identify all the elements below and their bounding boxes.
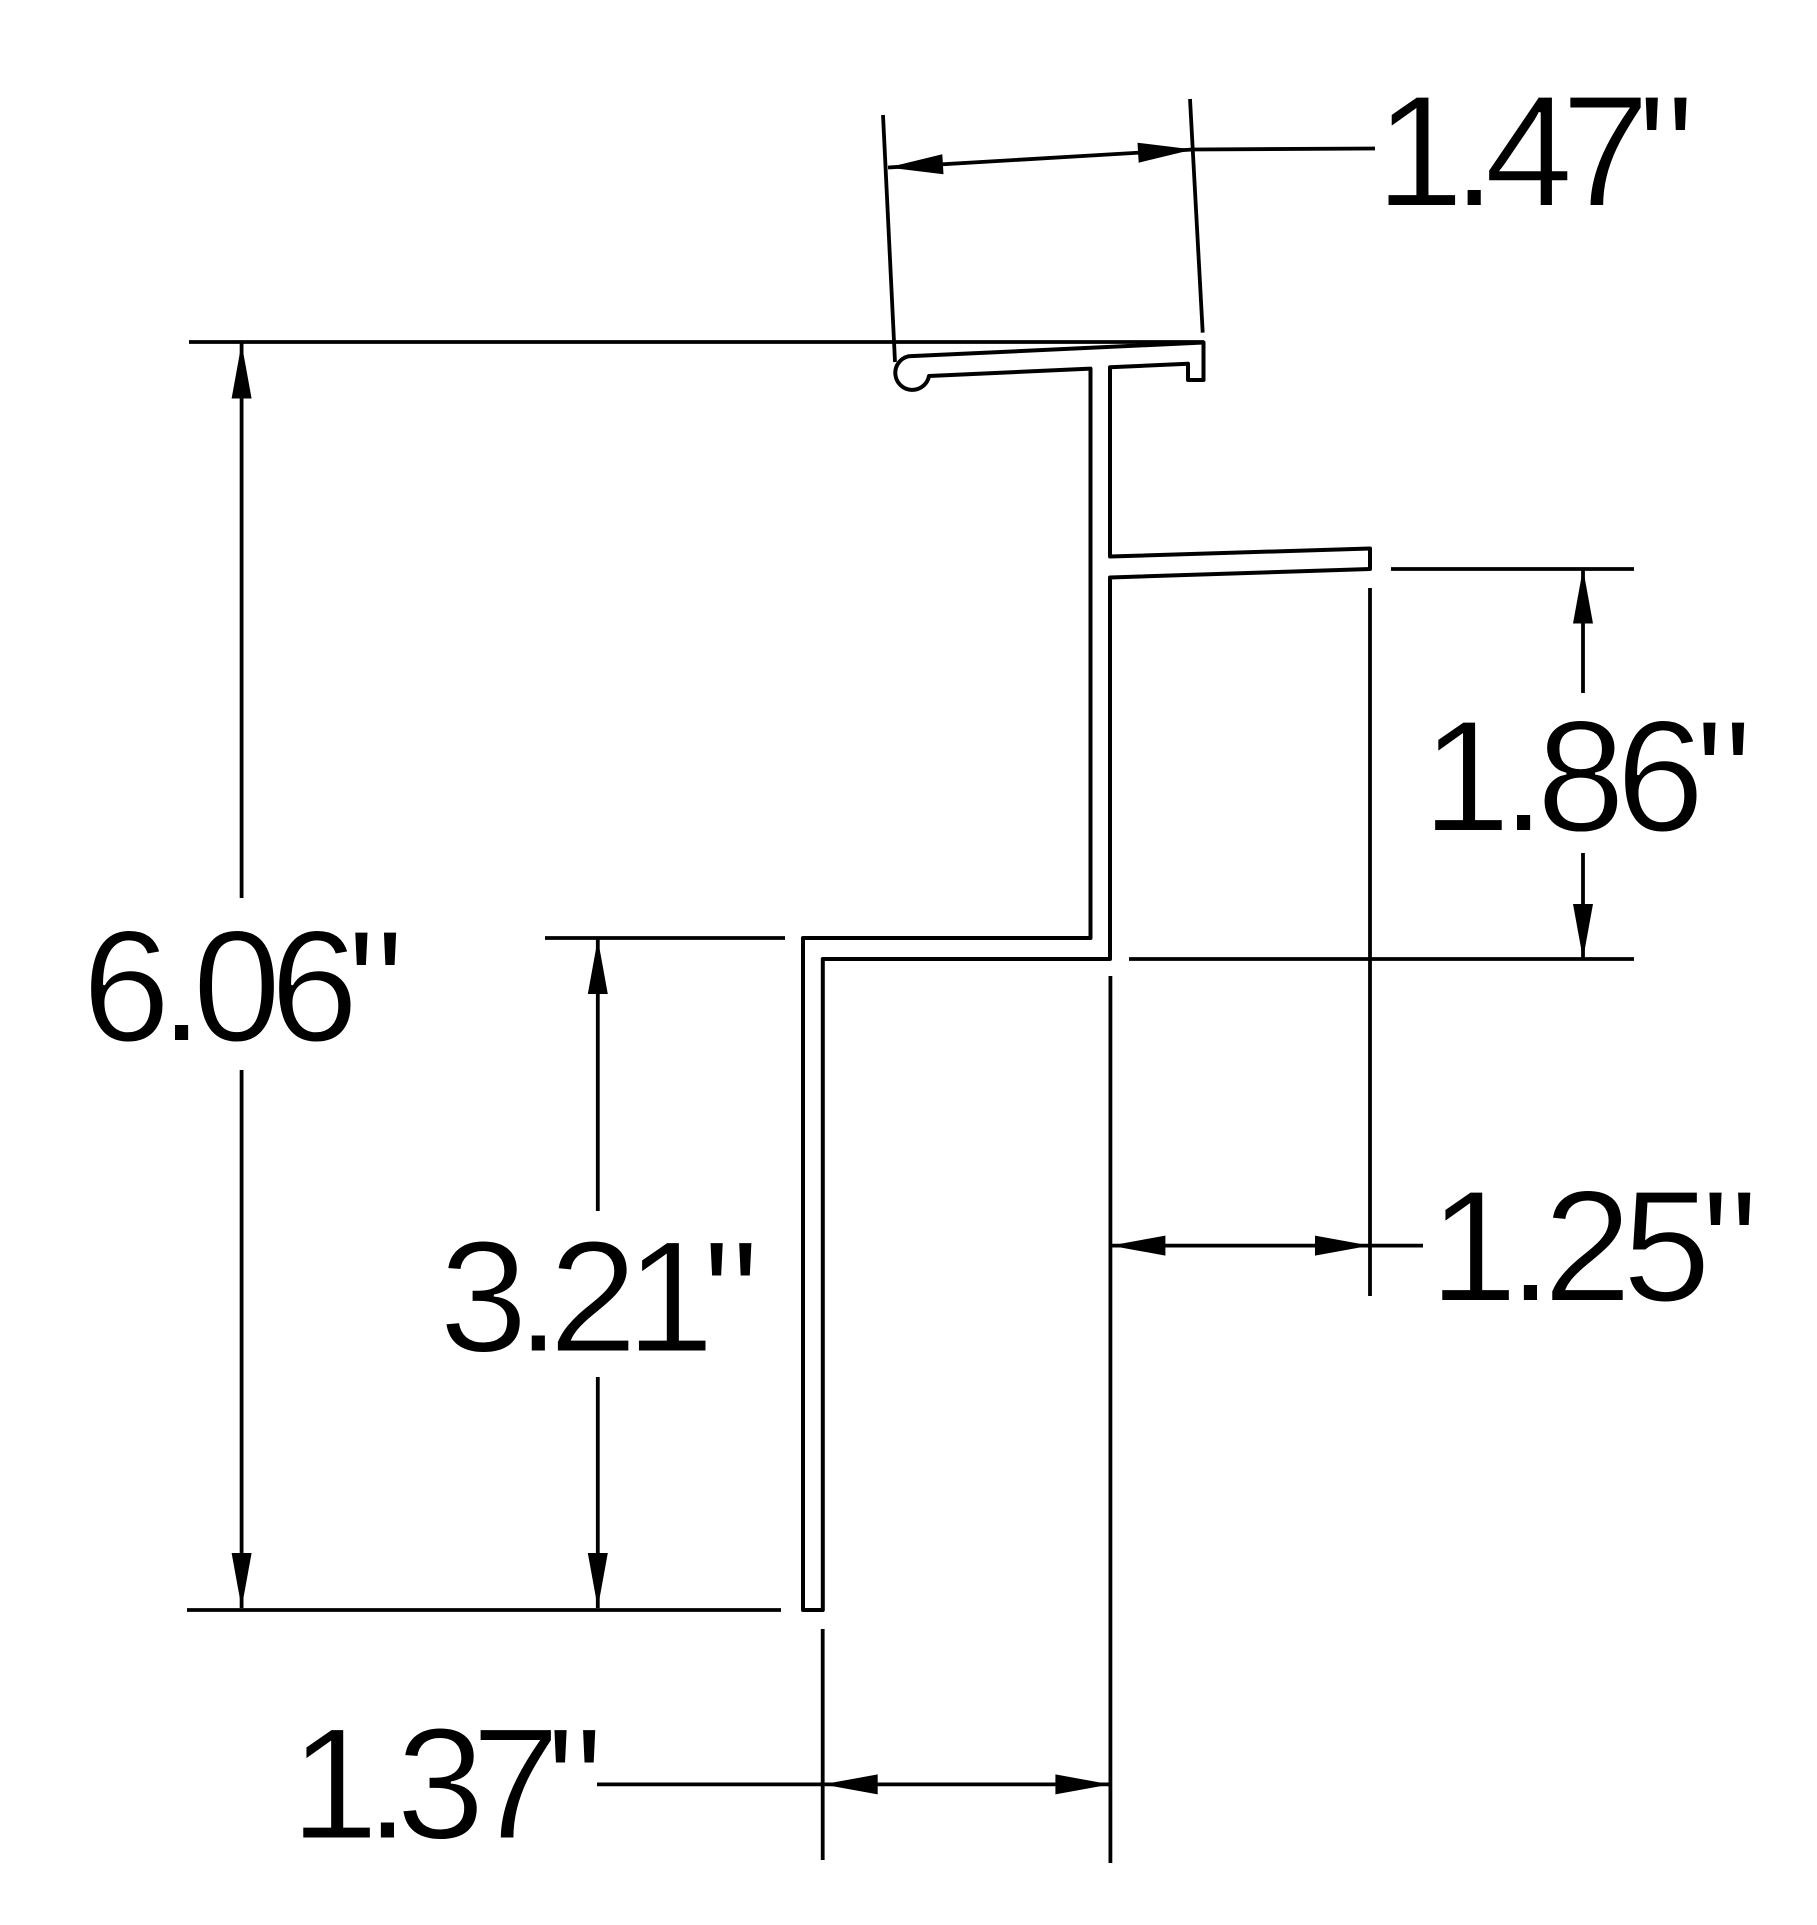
svg-text:1.86": 1.86" [1422,687,1745,865]
svg-text:6.06": 6.06" [82,897,397,1075]
svg-text:1.37": 1.37" [290,1695,596,1873]
svg-text:3.21": 3.21" [439,1208,752,1386]
svg-text:1.25": 1.25" [1429,1157,1751,1335]
svg-text:1.47": 1.47" [1375,62,1687,240]
